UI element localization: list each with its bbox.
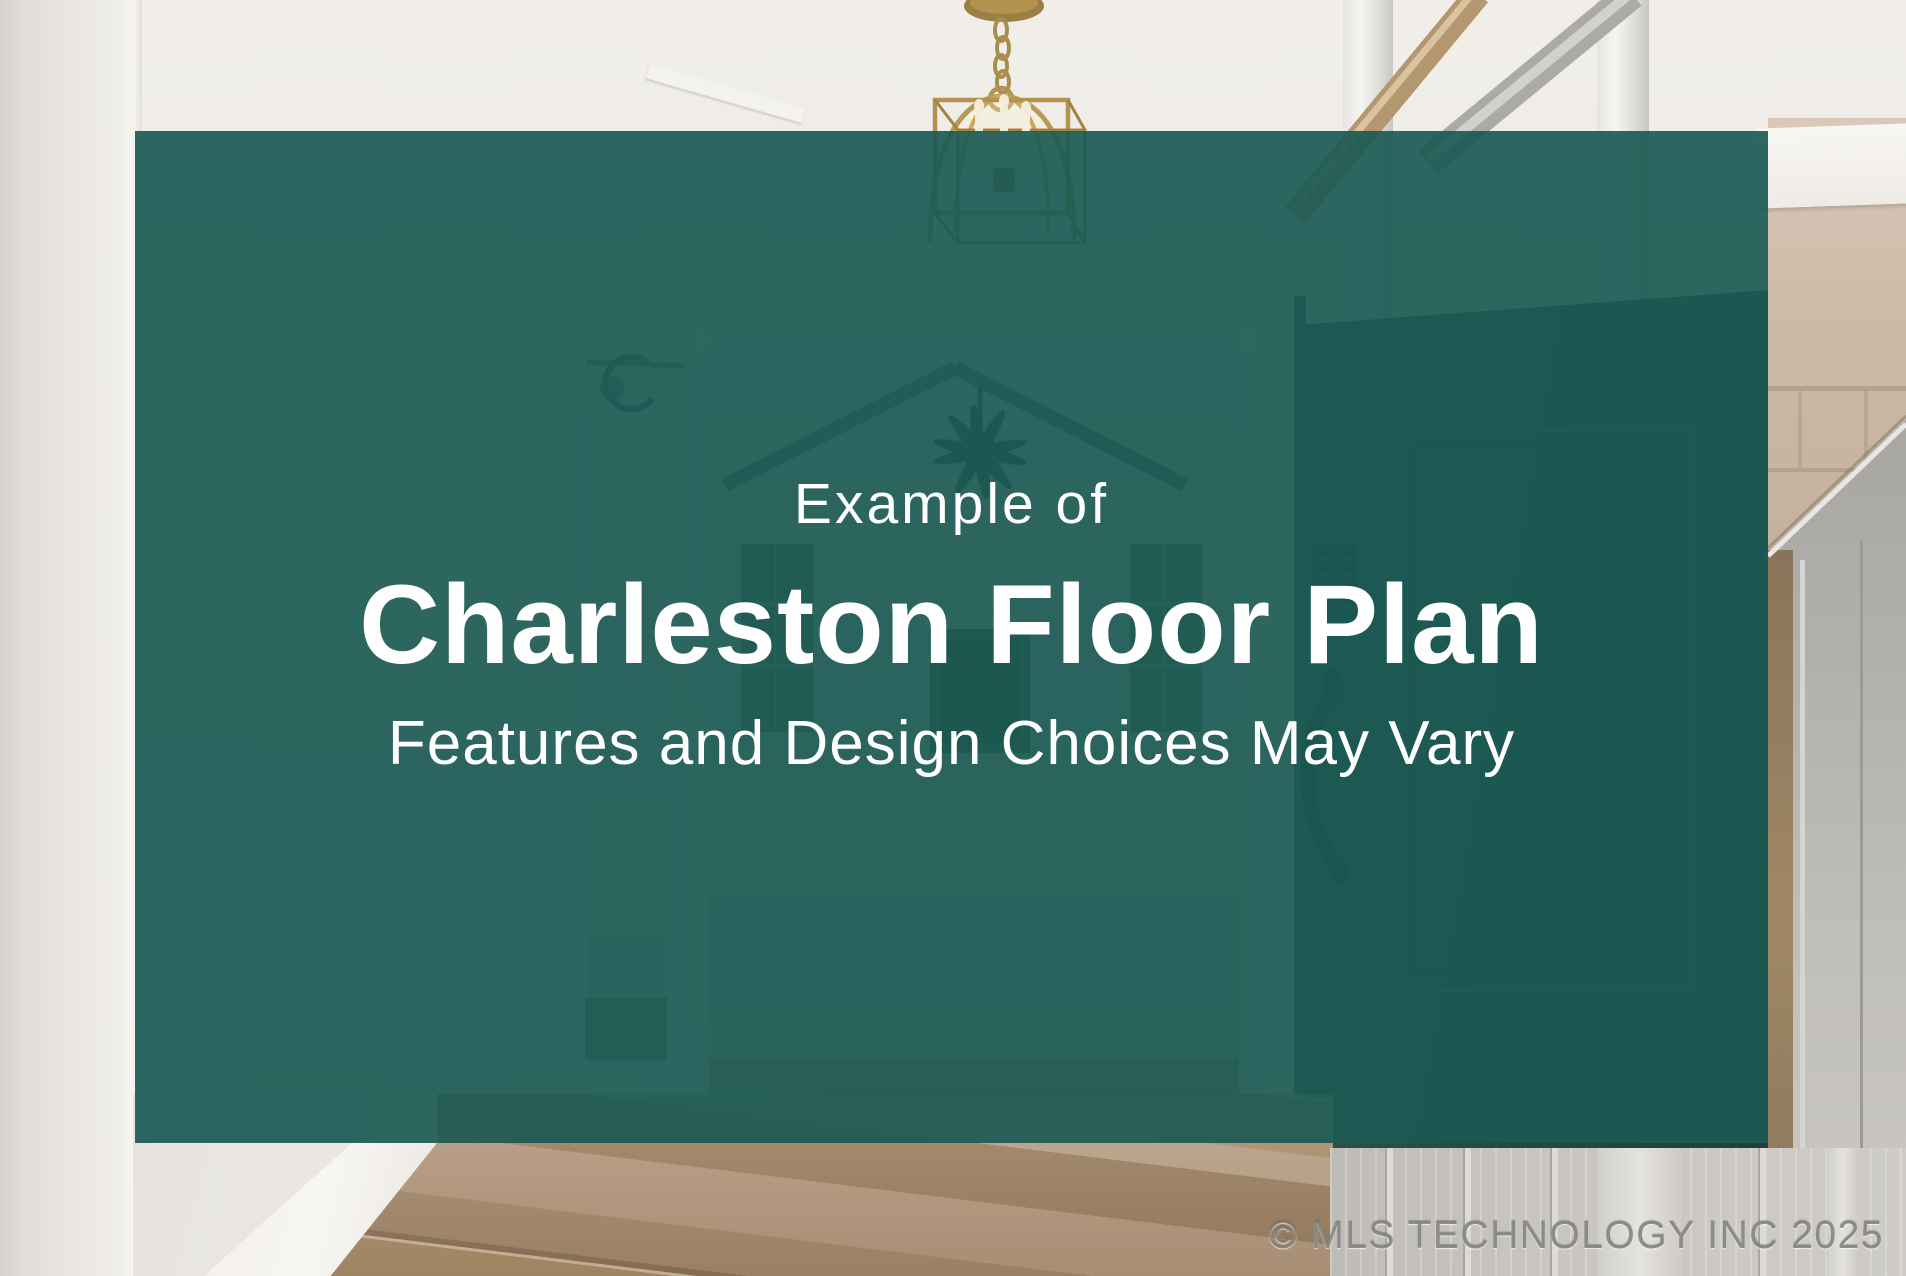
subtitle-text: Features and Design Choices May Vary xyxy=(135,713,1768,775)
door-header-trim xyxy=(1755,123,1906,208)
page-title: Charleston Floor Plan xyxy=(135,569,1768,681)
wainscot-stile-right xyxy=(1864,391,1868,469)
mls-watermark: © MLS TECHNOLOGY INC 2025 xyxy=(1269,1214,1884,1258)
wainscot-rail-upper xyxy=(1768,386,1906,391)
overlay-text-block: Example of Charleston Floor Plan Feature… xyxy=(135,476,1768,775)
kicker-text: Example of xyxy=(135,476,1768,533)
listing-photo-card: Example of Charleston Floor Plan Feature… xyxy=(0,0,1906,1276)
ceiling-molding-beam xyxy=(646,64,806,123)
left-wall xyxy=(0,0,142,1276)
gray-door-wood-edge xyxy=(1768,550,1793,1172)
wainscot-stile-left xyxy=(1798,391,1802,469)
